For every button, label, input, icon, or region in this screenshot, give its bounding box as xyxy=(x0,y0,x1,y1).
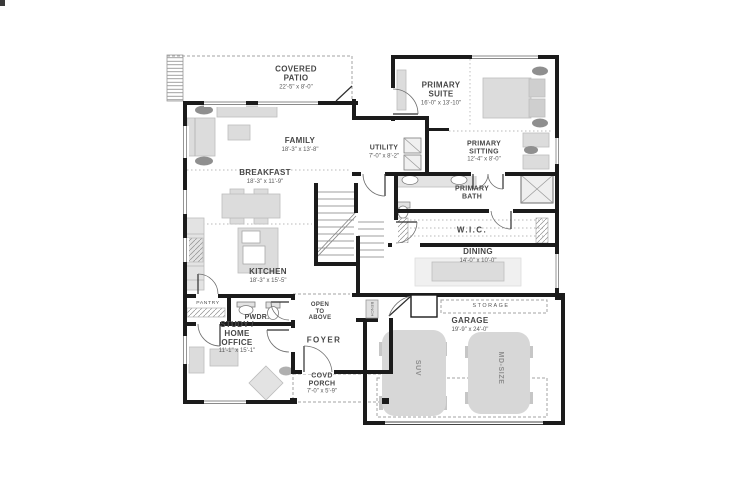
room-name: KITCHEN xyxy=(249,268,287,277)
room-label-breakfast: BREAKFAST 18'-3" x 11'-9" xyxy=(239,169,291,185)
breakfast-furniture xyxy=(222,189,280,224)
room-name: COVERED PATIO xyxy=(265,65,327,83)
room-name: BREAKFAST xyxy=(239,169,291,178)
garage-cars xyxy=(379,330,533,416)
room-label-pantry: PANTRY xyxy=(196,300,219,305)
room-name: STORAGE xyxy=(473,303,510,309)
room-name: PRIMARY SITTING xyxy=(459,141,509,156)
car-label-suv: SUV xyxy=(413,360,421,376)
porch-posts xyxy=(290,398,389,404)
room-name: W.I.C. xyxy=(457,227,487,236)
floor-plan-canvas: COVERED PATIO 22'-5" x 8'-0" FAMILY 18'-… xyxy=(0,0,740,480)
room-dims: 19'-9" x 24'-0" xyxy=(452,327,489,334)
room-name: STUDY / HOME OFFICE xyxy=(212,321,262,347)
garage-landing xyxy=(411,295,437,317)
room-label-garage: GARAGE 19'-9" x 24'-0" xyxy=(452,317,489,333)
room-name: COVD PORCH xyxy=(304,373,340,388)
room-label-primary-suite: PRIMARY SUITE 16'-0" x 13'-10" xyxy=(413,81,469,106)
stairs xyxy=(316,185,384,263)
room-dims: 11'-1" x 15'-1" xyxy=(212,348,262,355)
room-label-open-to-above: OPEN TO ABOVE xyxy=(307,302,333,322)
room-label-storage: STORAGE xyxy=(473,303,510,309)
annotation-text: MD-SIZE xyxy=(496,352,504,385)
room-name: UTILITY xyxy=(361,144,407,152)
room-name: PRIMARY SUITE xyxy=(413,81,469,99)
patio-hatch xyxy=(167,55,183,101)
room-label-kitchen: KITCHEN 18'-3" x 15'-5" xyxy=(249,268,287,284)
room-name: GARAGE xyxy=(452,317,489,326)
room-name: PANTRY xyxy=(196,300,219,305)
room-label-utility: UTILITY 7'-0" x 8'-2" xyxy=(361,144,407,159)
room-label-primary-bath: PRIMARY BATH xyxy=(447,185,497,200)
room-dims: 18'-3" x 11'-9" xyxy=(239,179,291,186)
room-label-foyer: FOYER xyxy=(307,337,342,346)
room-label-primary-sitting: PRIMARY SITTING 12'-4" x 8'-0" xyxy=(459,141,509,164)
room-label-study: STUDY / HOME OFFICE 11'-1" x 15'-1" xyxy=(212,321,262,355)
room-dims: 14'-0" x 10'-0" xyxy=(460,258,497,265)
room-dims: 18'-3" x 15'-5" xyxy=(249,278,287,285)
room-name: FOYER xyxy=(307,337,342,346)
corner-mark xyxy=(0,0,5,6)
room-label-family: FAMILY 18'-3" x 13'-8" xyxy=(282,137,319,153)
room-label-wic: W.I.C. xyxy=(457,227,487,236)
family-furniture xyxy=(187,106,277,166)
room-dims: 12'-4" x 8'-0" xyxy=(459,157,509,164)
room-dims: 7'-0" x 5'-9" xyxy=(304,389,340,396)
room-label-dining: DINING 14'-0" x 10'-0" xyxy=(460,248,497,264)
annotation-text: SUV xyxy=(413,360,421,376)
annotation-text: BENCH xyxy=(370,302,374,317)
room-dims: 18'-3" x 13'-8" xyxy=(282,147,319,154)
room-label-covd-porch: COVD PORCH 7'-0" x 5'-9" xyxy=(304,373,340,396)
sitting-furniture xyxy=(523,133,549,169)
car-label-md-size: MD-SIZE xyxy=(496,352,504,385)
room-name: DINING xyxy=(460,248,497,257)
room-name: FAMILY xyxy=(282,137,319,146)
bench-label: BENCH xyxy=(370,302,374,317)
room-dims: 22'-5" x 8'-0" xyxy=(265,84,327,91)
room-dims: 16'-0" x 13'-10" xyxy=(413,100,469,107)
room-name: PRIMARY BATH xyxy=(447,185,497,200)
floor-plan-drawing xyxy=(0,0,740,480)
room-dims: 7'-0" x 8'-2" xyxy=(361,153,407,160)
room-label-covered-patio: COVERED PATIO 22'-5" x 8'-0" xyxy=(265,65,327,90)
room-name: OPEN TO ABOVE xyxy=(307,302,333,322)
